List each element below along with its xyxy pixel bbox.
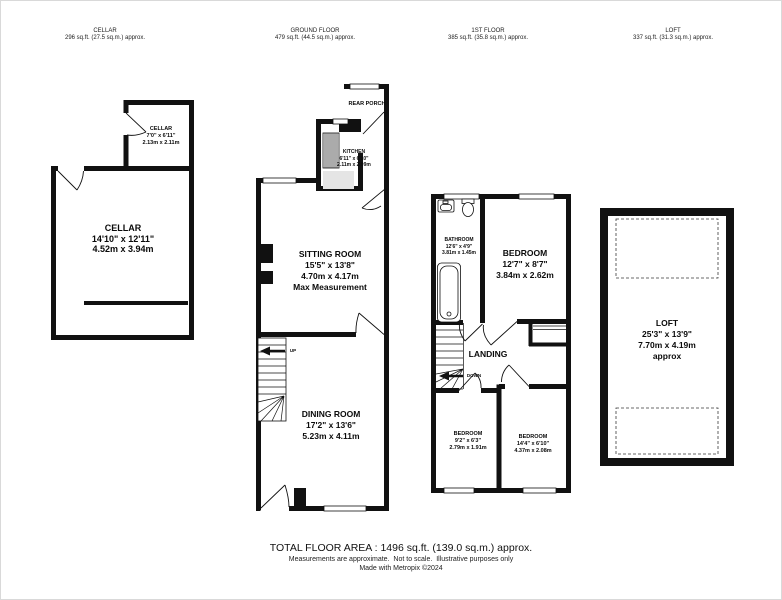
cellar-door-arcs [58, 113, 146, 190]
up-text: UP [290, 348, 296, 353]
label-bedroom-1: BEDROOM 12'7" x 8'7" 3.84m x 2.62m [496, 248, 554, 281]
label-kitchen: KITCHEN 6'11" x 6'10" 2.11m x 2.09m [337, 149, 371, 169]
label-bedroom-3: BEDROOM 14'4" x 6'10" 4.37m x 2.08m [514, 434, 551, 455]
down-text: DOWN [467, 373, 481, 378]
bedroom3-window [523, 488, 556, 493]
sitting-room-window [263, 178, 296, 183]
label-sitting-room: SITTING ROOM 15'5" x 13'8" 4.70m x 4.17m… [293, 249, 367, 293]
room-name: CELLAR [92, 223, 154, 234]
header-loft-area: 337 sq.ft. (31.3 sq.m.) approx. [633, 35, 713, 42]
loft-restricted-area-bottom [616, 408, 718, 454]
label-landing: LANDING [469, 349, 508, 360]
label-bedroom-2: BEDROOM 9'2" x 6'3" 2.79m x 1.91m [449, 431, 486, 452]
room-name: LANDING [469, 349, 508, 360]
cellar-steps-treads [325, 134, 337, 169]
room-dims-metric: 2.11m x 2.09m [337, 162, 371, 169]
chimney-breast-lower [261, 271, 273, 284]
room-name: BEDROOM [449, 431, 486, 438]
room-dims-metric: 2.79m x 1.91m [449, 445, 486, 452]
chimney-breast-upper [261, 244, 273, 263]
room-name: BATHROOM [442, 237, 476, 244]
room-dims-imperial: 25'3" x 13'9" [638, 329, 696, 340]
room-name: BEDROOM [514, 434, 551, 441]
room-dims-metric: 4.52m x 3.94m [92, 244, 154, 255]
room-dims-metric: 2.13m x 2.11m [142, 140, 179, 147]
label-cellar-small: CELLAR 7'0" x 6'11" 2.13m x 2.11m [142, 126, 179, 147]
header-cellar-title: CELLAR [65, 28, 145, 35]
cupboard-shelves [533, 326, 566, 330]
dining-room-window [324, 506, 366, 511]
kitchen-floor-area [323, 171, 354, 189]
cupboard-walls [529, 322, 569, 346]
label-loft: LOFT 25'3" x 13'9" 7.70m x 4.19m approx [638, 318, 696, 362]
header-ground-floor: GROUND FLOOR 479 sq.ft. (44.5 sq.m.) app… [275, 28, 355, 42]
toilet-bowl [463, 203, 474, 217]
header-loft-title: LOFT [633, 28, 713, 35]
room-dims-metric: 4.70m x 4.17m [293, 271, 367, 282]
room-dims-imperial: 7'0" x 6'11" [142, 133, 179, 140]
kitchen-window [333, 119, 348, 124]
bathtub-drain [447, 312, 451, 316]
room-dims-imperial: 12'7" x 8'7" [496, 259, 554, 270]
bottom-wall-pier [294, 488, 306, 511]
room-name: DINING ROOM [302, 409, 361, 420]
loft-restricted-area-top [616, 219, 718, 278]
room-dims-metric: 5.23m x 4.11m [302, 431, 361, 442]
label-bathroom: BATHROOM 12'6" x 4'9" 3.81m x 1.45m [442, 237, 476, 257]
credit-text: Made with Metropix ©2024 [359, 565, 442, 572]
bathtub-inner [440, 266, 458, 319]
room-dims-imperial: 14'4" x 6'10" [514, 441, 551, 448]
room-name: CELLAR [142, 126, 179, 133]
room-dims-imperial: 17'2" x 13'6" [302, 420, 361, 431]
header-ground-floor-area: 479 sq.ft. (44.5 sq.m.) approx. [275, 35, 355, 42]
room-note: approx [638, 351, 696, 362]
room-name: SITTING ROOM [293, 249, 367, 260]
room-dims-metric: 7.70m x 4.19m [638, 340, 696, 351]
bathroom-window [444, 194, 479, 199]
disclaimer-text: Measurements are approximate. Not to sca… [289, 556, 514, 563]
room-dims-imperial: 15'5" x 13'8" [293, 260, 367, 271]
bedroom1-window [519, 194, 554, 199]
room-name: BEDROOM [496, 248, 554, 259]
total-floor-area: TOTAL FLOOR AREA : 1496 sq.ft. (139.0 sq… [270, 542, 532, 554]
ground-walls [256, 84, 389, 511]
label-stairs-down: DOWN [467, 373, 481, 378]
room-dims-metric: 3.84m x 2.62m [496, 270, 554, 281]
room-name: REAR PORCH [349, 101, 386, 108]
staircase-down-treads [436, 330, 463, 389]
porch-window [350, 84, 379, 89]
header-loft: LOFT 337 sq.ft. (31.3 sq.m.) approx. [633, 28, 713, 42]
room-dims-metric: 3.81m x 1.45m [442, 250, 476, 257]
bedroom2-window [444, 488, 474, 493]
label-dining-room: DINING ROOM 17'2" x 13'6" 5.23m x 4.11m [302, 409, 361, 442]
label-cellar-main: CELLAR 14'10" x 12'11" 4.52m x 3.94m [92, 223, 154, 255]
room-dims-metric: 4.37m x 2.08m [514, 448, 551, 455]
header-cellar: CELLAR 296 sq.ft. (27.5 sq.m.) approx. [65, 28, 145, 42]
room-dims-imperial: 9'2" x 6'3" [449, 438, 486, 445]
sink-tap [443, 201, 448, 204]
header-ground-floor-title: GROUND FLOOR [275, 28, 355, 35]
sink-bowl [441, 205, 452, 211]
room-note: Max Measurement [293, 282, 367, 293]
header-first-floor: 1ST FLOOR 385 sq.ft. (35.8 sq.m.) approx… [448, 28, 528, 42]
header-cellar-area: 296 sq.ft. (27.5 sq.m.) approx. [65, 35, 145, 42]
room-name: LOFT [638, 318, 696, 329]
staircase-down-outline [436, 323, 464, 389]
room-dims-imperial: 14'10" x 12'11" [92, 234, 154, 245]
label-rear-porch: REAR PORCH [349, 101, 386, 108]
header-first-floor-area: 385 sq.ft. (35.8 sq.m.) approx. [448, 35, 528, 42]
floorplan-page: CELLAR 296 sq.ft. (27.5 sq.m.) approx. G… [0, 0, 782, 600]
ground-floorplan [251, 81, 396, 513]
header-first-floor-title: 1ST FLOOR [448, 28, 528, 35]
label-stairs-up: UP [290, 348, 296, 353]
